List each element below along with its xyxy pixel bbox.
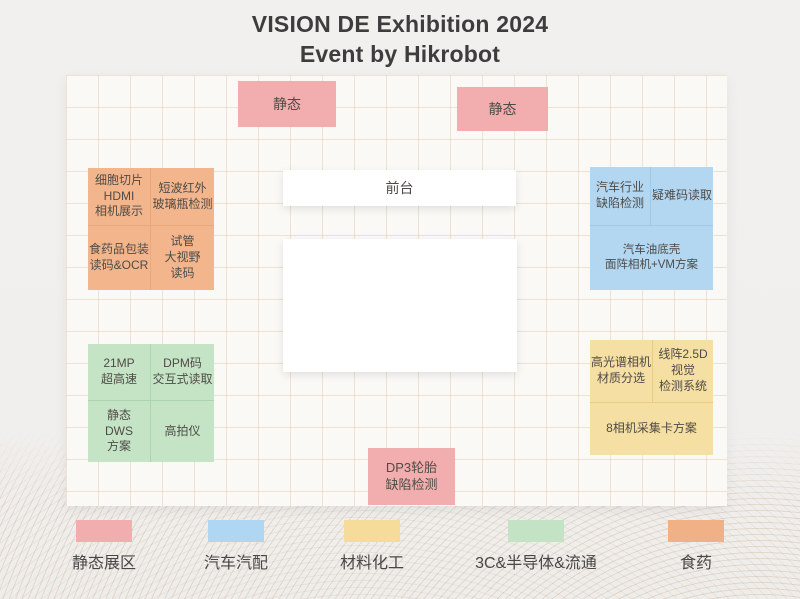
booth-21mp-high-speed: 21MP 超高速	[88, 344, 150, 400]
page-title: VISION DE Exhibition 2024 Event by Hikro…	[0, 10, 800, 70]
legend-item-3c-semiconductor: 3C&半导体&流通	[461, 520, 611, 573]
booth-pharma-package-code-ocr: 食药品包装 读码&OCR	[88, 226, 150, 290]
zone-material-chemical: 高光谱相机 材质分选 线阵2.5D 视觉 检测系统 8相机采集卡方案	[590, 340, 713, 455]
zone-3c-semiconductor-logistics: 21MP 超高速 DPM码 交互式读取 静态 DWS 方案 高拍仪	[88, 344, 214, 462]
booth-hyperspectral-material-sorting: 高光谱相机 材质分选	[590, 340, 652, 402]
zone-pharma-food: 细胞切片 HDMI 相机展示 短波红外 玻璃瓶检测 食药品包装 读码&OCR 试…	[88, 168, 214, 290]
booth-oil-pan-area-camera-vm: 汽车油底壳 面阵相机+VM方案	[590, 226, 713, 290]
legend-item-static: 静态展区	[29, 520, 179, 573]
legend-label-material: 材料化工	[340, 549, 404, 573]
booth-dpm-code-interactive-reading: DPM码 交互式读取	[151, 344, 214, 400]
legend-swatch-3c-semiconductor	[508, 520, 564, 542]
booth-auto-industry-defect-inspection: 汽车行业 缺陷检测	[590, 167, 650, 225]
booth-8-camera-frame-grabber: 8相机采集卡方案	[590, 403, 713, 455]
legend-label-automotive: 汽车汽配	[204, 549, 268, 573]
legend-label-static: 静态展区	[72, 549, 136, 573]
exhibition-floor-plan-page: VISION DE Exhibition 2024 Event by Hikro…	[0, 0, 800, 599]
legend: 静态展区 汽车汽配 材料化工 3C&半导体&流通 食药	[0, 520, 800, 584]
legend-swatch-automotive	[208, 520, 264, 542]
booth-dp3-tire-defect-inspection: DP3轮胎 缺陷检测	[368, 448, 455, 505]
booth-difficult-code-reading: 疑难码读取	[651, 167, 713, 225]
legend-swatch-material	[344, 520, 400, 542]
legend-label-pharma: 食药	[680, 549, 712, 573]
legend-label-3c-semiconductor: 3C&半导体&流通	[475, 549, 597, 573]
page-title-line2: Event by Hikrobot	[300, 41, 500, 67]
booth-static-dws-solution: 静态 DWS 方案	[88, 401, 150, 462]
legend-item-automotive: 汽车汽配	[161, 520, 311, 573]
booth-static-right: 静态	[457, 87, 548, 131]
zone-automotive: 汽车行业 缺陷检测 疑难码读取 汽车油底壳 面阵相机+VM方案	[590, 167, 713, 290]
booth-line-scan-2p5d-vision: 线阵2.5D 视觉 检测系统	[653, 340, 713, 402]
legend-item-pharma: 食药	[621, 520, 771, 573]
floor-plan-grid: 静态 静态 前台 细胞切片 HDMI 相机展示 短波红外 玻璃瓶检测 食药品包装…	[66, 75, 727, 506]
legend-item-material: 材料化工	[297, 520, 447, 573]
legend-swatch-static	[76, 520, 132, 542]
legend-swatch-pharma	[668, 520, 724, 542]
booth-document-scanner: 高拍仪	[151, 401, 214, 462]
page-title-line1: VISION DE Exhibition 2024	[252, 11, 548, 37]
booth-swir-glass-bottle-inspection: 短波红外 玻璃瓶检测	[151, 168, 214, 225]
front-desk: 前台	[283, 170, 516, 206]
booth-static-left: 静态	[238, 81, 336, 127]
booth-test-tube-wide-view-reading: 试管 大视野 读码	[151, 226, 214, 290]
center-stage-area	[283, 239, 517, 372]
booth-cell-slide-hdmi-camera: 细胞切片 HDMI 相机展示	[88, 168, 150, 225]
